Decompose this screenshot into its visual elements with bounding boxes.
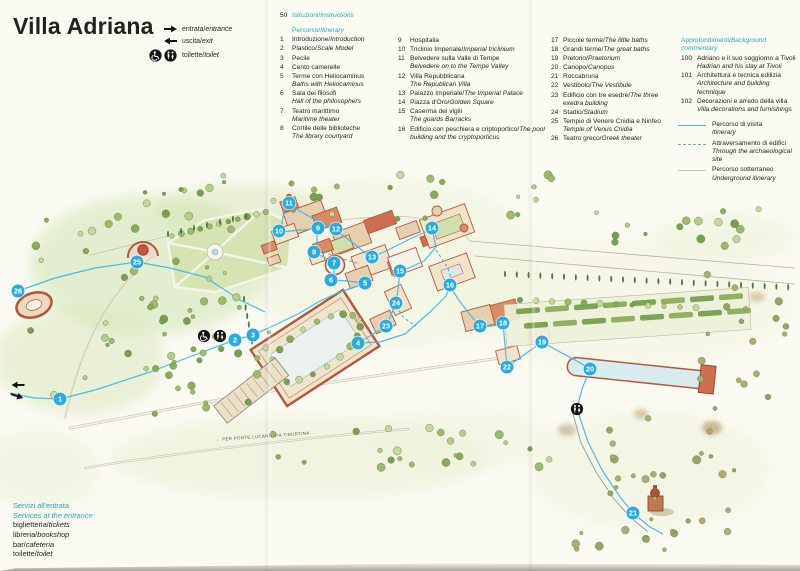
item-label: Canopo/Canopus [563,64,678,72]
map-marker-17: 17 [474,320,487,333]
service-item-cafeteria: bar/cafeteria [13,540,93,550]
itinerary-item-15: 15Caserma dei vigiliThe guards Barracks [398,108,548,125]
item-label: Belvedere sulla Valle di TempeBelvedere … [410,55,548,72]
item-label: Piccole terme/The little baths [563,37,678,45]
item-label: Palazzo Imperiale/The Imperial Palace [410,90,548,98]
itinerary-item-14: 14Piazza d'Oro/Golden Square [398,99,548,107]
map-marker-2: 2 [229,334,242,347]
item-number: 12 [398,73,410,90]
route-legend-item-2: Percorso sotterraneoUnderground itinerar… [678,166,800,183]
services-block: Servizi all'entrataServices at the entra… [13,501,93,559]
map-marker-21: 21 [627,507,640,520]
itinerary-item-24: 24Stadio/Stadium [551,109,678,117]
itinerary-item-26: 26Teatro greco/Greek theater [551,135,678,143]
map-marker-26: 26 [12,285,25,298]
item-number: 7 [280,108,292,125]
page-title: Villa Adriana [13,13,154,40]
item-label: Terme con HeliocaminusBaths with Helioca… [292,73,396,90]
itinerary-item-16: 16Edificio con peschiera e criptoportico… [398,126,548,143]
background-heading: Approfondimenti/Background commentary [681,37,798,54]
item-number: 24 [551,109,563,117]
item-label: Adriano e il suo soggiorno a TivoliHadri… [697,55,798,72]
item-label: Villa RepubblicanaThe Republican Villa [410,73,548,90]
services-heading: Servizi all'entrataServices at the entra… [13,501,93,520]
service-item-tickets: biglietteria/tickets [13,520,93,530]
access-label: uscita/exit [182,38,213,45]
map-toilet-icon [214,330,227,343]
route-legend-item-0: Percorso di visitaItinerary [678,121,800,138]
itinerary-item-18: 18Grandi terme/The great baths [551,46,678,54]
item-number: 101 [681,72,697,97]
map-marker-24: 24 [390,297,403,310]
map-marker-22: 22 [501,361,514,374]
toilet-icon [214,330,227,343]
item-label: Vestibolo/The Vestibule [563,82,678,90]
map-marker-7: 7 [328,257,341,270]
item-number: 23 [551,92,563,109]
item-label: Tempio di Venere Cnidia e NinfeoTemple o… [563,118,678,135]
access-label: toilette/toilet [182,52,219,59]
brochure-page: ← PER PONTE LUCANO VIA TIBURTINA Villa A… [0,0,800,571]
route-legend-label: Attraversamento di edificiThrough the ar… [712,140,800,165]
item-label: Introduzione/Introduction [292,36,396,44]
itinerary-item-2: 2Plastico/Scale Model [280,45,396,53]
map-marker-3: 3 [247,329,260,342]
gray-route-line-swatch [678,166,708,183]
map-marker-20: 20 [584,363,597,376]
item-number: 20 [551,64,563,72]
item-number: 3 [280,55,292,63]
item-number: 15 [398,108,410,125]
map-marker-14: 14 [426,222,439,235]
access-icon-box [147,49,177,62]
itinerary-item-22: 22Vestibolo/The Vestibule [551,82,678,90]
map-marker-11: 11 [283,197,296,210]
itinerary-item-10: 10Triclinio Imperiale/Imperial tricliniu… [398,46,548,54]
accessible-icon [149,49,162,62]
item-label: Triclinio Imperiale/Imperial triclinium [410,46,548,54]
item-number: 4 [280,64,292,72]
access-legend-row-toilet: toilette/toilet [147,49,232,62]
map-marker-13: 13 [366,251,379,264]
item-label: Teatro greco/Greek theater [563,135,678,143]
route-legend-label: Percorso sotterraneoUnderground itinerar… [712,166,800,183]
itinerary-item-9: 9Hospitalia [398,37,548,45]
item-number: 11 [398,55,410,72]
item-number: 9 [398,37,410,45]
item-label: Piazza d'Oro/Golden Square [410,99,548,107]
background-item-102: 102Decorazioni e arredo della villaVilla… [681,98,798,115]
item-number: 1 [280,36,292,44]
itinerary-item-13: 13Palazzo Imperiale/The Imperial Palace [398,90,548,98]
item-number: 2 [280,45,292,53]
item-number: 25 [551,118,563,135]
map-marker-9: 9 [312,222,325,235]
map-marker-12: 12 [330,223,343,236]
exit-arrow-icon [164,37,177,45]
access-icon-box [147,37,177,45]
access-icon-box [147,25,177,33]
map-marker-16: 16 [444,279,457,292]
itinerary-item-8: 8Cortile delle bibliotecheThe library co… [280,125,396,142]
accessible-icon [198,330,211,343]
item-label: Teatro marittimoMaritime theater [292,108,396,125]
item-label: Cento camerelle [292,64,396,72]
map-accessible-icon [198,330,211,343]
item-label: Edificio con tre esedre/The three exedra… [563,92,678,109]
instructions-row: 50 Istruzioni/Instructions [280,12,396,20]
background-column: Approfondimenti/Background commentary 10… [681,37,798,115]
toilet-icon [164,49,177,62]
service-item-bookshop: libreria/bookshop [13,530,93,540]
item-number: 13 [398,90,410,98]
item-label: Caserma dei vigiliThe guards Barracks [410,108,548,125]
access-legend-row-exit: uscita/exit [147,37,232,45]
itinerary-item-11: 11Belvedere sulla Valle di TempeBelveder… [398,55,548,72]
item-number: 10 [398,46,410,54]
item-number: 5 [280,73,292,90]
item-label: Hospitalia [410,37,548,45]
item-number: 26 [551,135,563,143]
itinerary-item-25: 25Tempio di Venere Cnidia e NinfeoTemple… [551,118,678,135]
access-label: entrata/entrance [182,26,232,33]
item-label: Stadio/Stadium [563,109,678,117]
dashed-route-line-swatch [678,140,708,165]
itinerary-item-3: 3Pecile [280,55,396,63]
map-toilet-icon [571,403,584,416]
access-legend-row-entrance: entrata/entrance [147,25,232,33]
route-legend: Percorso di visitaItineraryAttraversamen… [678,121,800,185]
item-number: 100 [681,55,697,72]
background-item-101: 101Architettura e tecnica ediliziaArchit… [681,72,798,97]
item-label: Pecile [292,55,396,63]
map-marker-1: 1 [54,393,67,406]
itinerary-item-21: 21Roccabruna [551,73,678,81]
route-legend-label: Percorso di visitaItinerary [712,121,800,138]
item-label: Pretorio/Praetorium [563,55,678,63]
item-number: 16 [398,126,410,143]
item-label: Roccabruna [563,73,678,81]
item-label: Plastico/Scale Model [292,45,396,53]
itinerary-item-12: 12Villa RepubblicanaThe Republican Villa [398,73,548,90]
itinerary-item-17: 17Piccole terme/The little baths [551,37,678,45]
background-item-100: 100Adriano e il suo soggiorno a TivoliHa… [681,55,798,72]
itinerary-heading: Percorso/Itinerary [280,27,396,35]
route-legend-item-1: Attraversamento di edificiThrough the ar… [678,140,800,165]
map-marker-25: 25 [131,256,144,269]
map-marker-8: 8 [308,246,321,259]
map-marker-5: 5 [359,277,372,290]
item-label: Architettura e tecnica ediliziaArchitect… [697,72,798,97]
map-marker-4: 4 [352,337,365,350]
itinerary-column-3: 17Piccole terme/The little baths18Grandi… [551,37,678,145]
map-marker-15: 15 [394,265,407,278]
item-number: 17 [551,37,563,45]
map-exit-arrow-icon [12,381,25,389]
itinerary-item-7: 7Teatro marittimoMaritime theater [280,108,396,125]
map-marker-6: 6 [325,274,338,287]
toilet-icon [571,403,584,416]
item-label: Cortile delle bibliotecheThe library cou… [292,125,396,142]
item-number: 19 [551,55,563,63]
map-marker-23: 23 [380,320,393,333]
item-number: 14 [398,99,410,107]
exit-arrow-icon [12,381,25,389]
map-marker-18: 18 [497,317,510,330]
itinerary-column-1: 50 Istruzioni/Instructions Percorso/Itin… [280,12,396,142]
itinerary-column-2: 9Hospitalia10Triclinio Imperiale/Imperia… [398,37,548,143]
itinerary-item-5: 5Terme con HeliocaminusBaths with Helioc… [280,73,396,90]
map-marker-19: 19 [536,336,549,349]
itinerary-item-23: 23Edificio con tre esedre/The three exed… [551,92,678,109]
map-marker-10: 10 [273,225,286,238]
itinerary-item-4: 4Cento camerelle [280,64,396,72]
item-number: 18 [551,46,563,54]
item-number: 21 [551,73,563,81]
item-label: Sala dei filosofiHall of the philosopher… [292,90,396,107]
item-number: 22 [551,82,563,90]
item-number: 6 [280,90,292,107]
access-legend: entrata/entranceuscita/exittoilette/toil… [147,25,232,66]
itinerary-item-20: 20Canopo/Canopus [551,64,678,72]
itinerary-item-6: 6Sala dei filosofiHall of the philosophe… [280,90,396,107]
itinerary-item-1: 1Introduzione/Introduction [280,36,396,44]
item-label: Edificio con peschiera e criptoportico/T… [410,126,548,143]
solid-route-line-swatch [678,121,708,138]
item-label: Decorazioni e arredo della villaVilla de… [697,98,798,115]
item-label: Grandi terme/The great baths [563,46,678,54]
item-number: 102 [681,98,697,115]
service-item-toilet: toilette/toilet [13,549,93,559]
entrance-arrow-icon [164,25,177,33]
item-number: 8 [280,125,292,142]
itinerary-item-19: 19Pretorio/Praetorium [551,55,678,63]
